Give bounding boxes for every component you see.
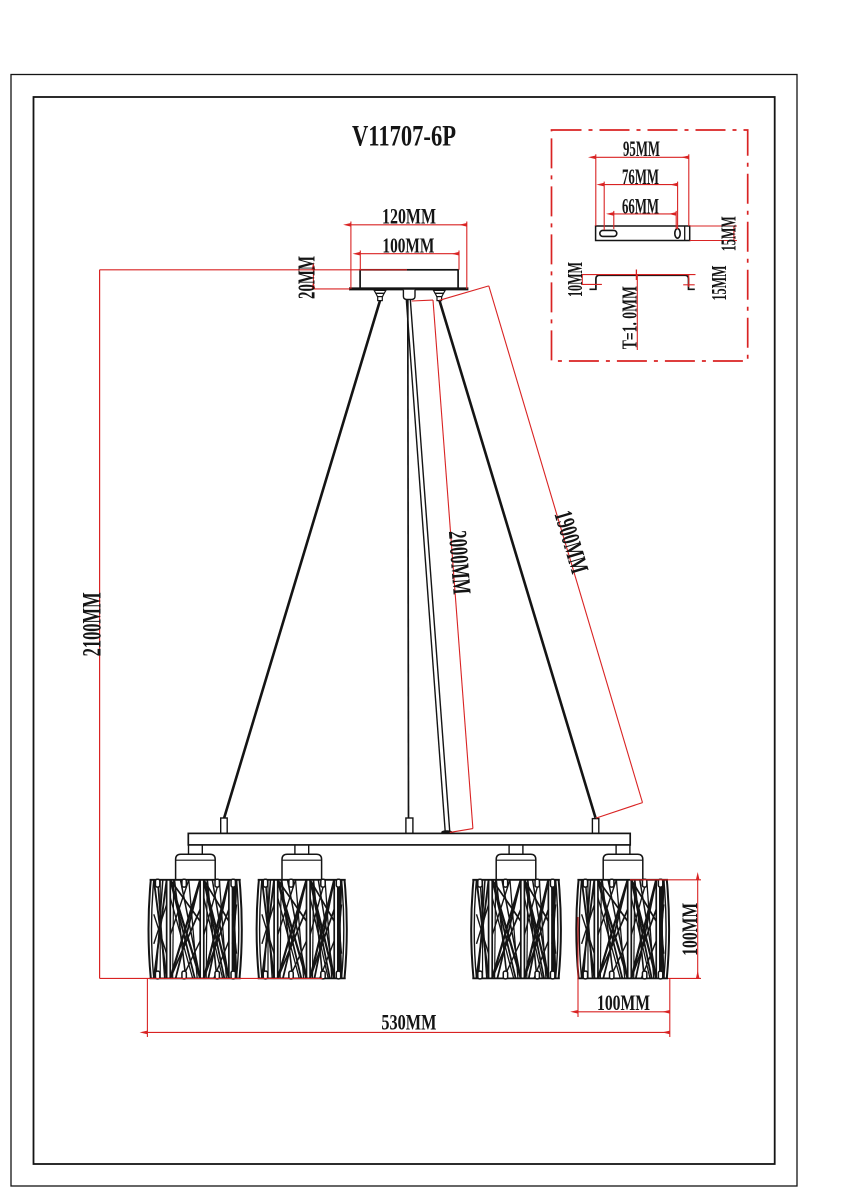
svg-text:100MM: 100MM <box>382 234 434 258</box>
svg-text:2100MM: 2100MM <box>77 592 106 656</box>
svg-text:15MM: 15MM <box>707 265 731 300</box>
svg-text:100MM: 100MM <box>597 990 650 1015</box>
svg-text:76MM: 76MM <box>622 164 659 189</box>
svg-text:530MM: 530MM <box>381 1010 436 1035</box>
svg-text:95MM: 95MM <box>623 136 660 161</box>
svg-text:20MM: 20MM <box>294 256 320 299</box>
svg-text:15MM: 15MM <box>717 216 741 251</box>
svg-text:120MM: 120MM <box>382 204 436 229</box>
svg-text:100MM: 100MM <box>677 903 702 956</box>
svg-text:10MM: 10MM <box>563 262 587 297</box>
svg-text:66MM: 66MM <box>622 194 659 219</box>
svg-text:T=1. 0MM: T=1. 0MM <box>617 286 641 349</box>
svg-text:2000MM: 2000MM <box>443 530 477 596</box>
svg-text:V11707-6P: V11707-6P <box>352 120 456 153</box>
